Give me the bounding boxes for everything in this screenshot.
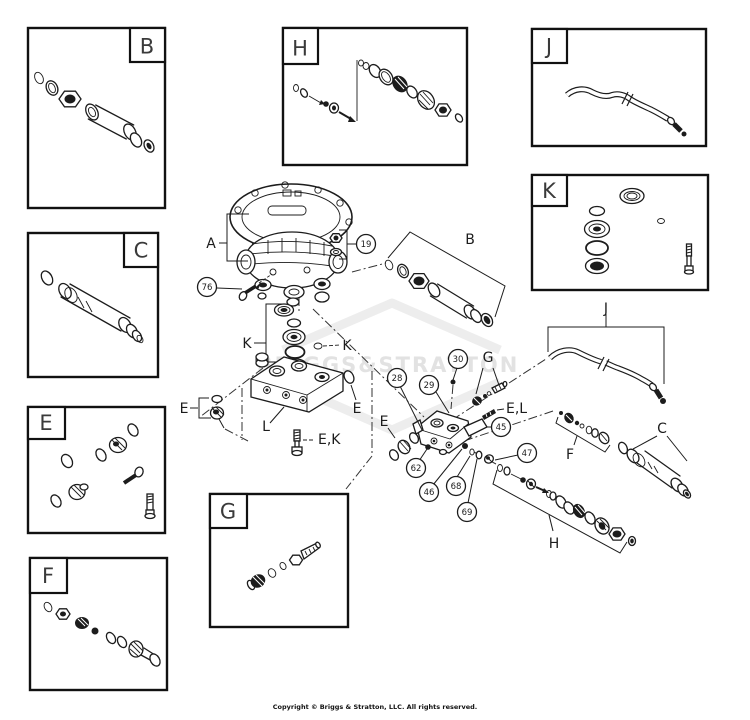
- label-e-left: E: [180, 401, 189, 417]
- svg-text:76: 76: [202, 283, 213, 293]
- detail-box-j: J: [532, 29, 706, 146]
- h-chain-drawing: [493, 465, 636, 554]
- pump-assembly-a-drawing: [219, 182, 352, 306]
- label-k-oring: K: [342, 338, 352, 354]
- box-c-label: C: [134, 239, 149, 263]
- label-j-hose: J: [603, 301, 608, 317]
- box-h-label: H: [292, 37, 308, 61]
- svg-text:29: 29: [424, 381, 435, 391]
- parts-diagram-canvas: BRIGGS&STRATTON B: [0, 0, 750, 720]
- label-assembly-a: A: [206, 236, 216, 252]
- detail-box-h: H: [283, 28, 467, 165]
- callout-19: 19: [357, 235, 376, 254]
- callout-47: 47: [495, 444, 537, 463]
- label-c-tube: C: [657, 421, 667, 437]
- c-tube-drawing: [617, 436, 692, 499]
- detail-box-e: E: [28, 407, 165, 533]
- label-f-chain: F: [566, 447, 574, 463]
- b-group-drawing: [384, 232, 505, 329]
- detail-box-b: B: [28, 28, 165, 208]
- label-e-oring: E: [353, 401, 362, 417]
- copyright-text: Copyright © Briggs & Stratton, LLC. All …: [273, 703, 478, 711]
- ek-bolt-drawing: [292, 430, 314, 456]
- svg-text:46: 46: [424, 488, 435, 498]
- svg-text:47: 47: [522, 449, 533, 459]
- box-j-label: J: [544, 35, 552, 59]
- label-ek-bolt: E,K: [318, 432, 341, 448]
- callout-76: 76: [198, 278, 217, 297]
- label-el-stud: E,L: [506, 401, 527, 417]
- label-g-chain: G: [483, 350, 494, 366]
- box-k-label: K: [542, 179, 557, 203]
- svg-text:68: 68: [451, 482, 462, 492]
- svg-text:69: 69: [462, 508, 473, 518]
- label-h-chain: H: [549, 536, 560, 552]
- detail-box-k: K: [532, 175, 708, 290]
- box-e-label: E: [39, 411, 52, 435]
- svg-text:62: 62: [411, 464, 422, 474]
- label-b-group: B: [465, 232, 475, 248]
- detail-box-c: C: [28, 233, 158, 377]
- label-k-stack: K: [242, 336, 252, 352]
- detail-box-g: G: [210, 494, 348, 627]
- box-b-label: B: [140, 35, 154, 59]
- label-e-spring: E: [380, 414, 389, 430]
- callout-62: 62: [407, 449, 428, 478]
- box-g-label: G: [220, 500, 236, 524]
- label-l-manifold: L: [262, 419, 270, 435]
- detail-box-f: F: [30, 558, 167, 690]
- k-oring-drawing: [314, 343, 340, 349]
- parts-diagram: BRIGGS&STRATTON B: [0, 0, 750, 720]
- svg-text:19: 19: [361, 240, 372, 250]
- svg-text:45: 45: [496, 423, 507, 433]
- svg-text:28: 28: [392, 374, 403, 384]
- f-chain-drawing: [556, 411, 611, 452]
- box-f-label: F: [42, 564, 54, 588]
- callout-68: 68: [447, 456, 471, 496]
- j-hose-drawing: [548, 314, 666, 404]
- svg-text:30: 30: [453, 355, 464, 365]
